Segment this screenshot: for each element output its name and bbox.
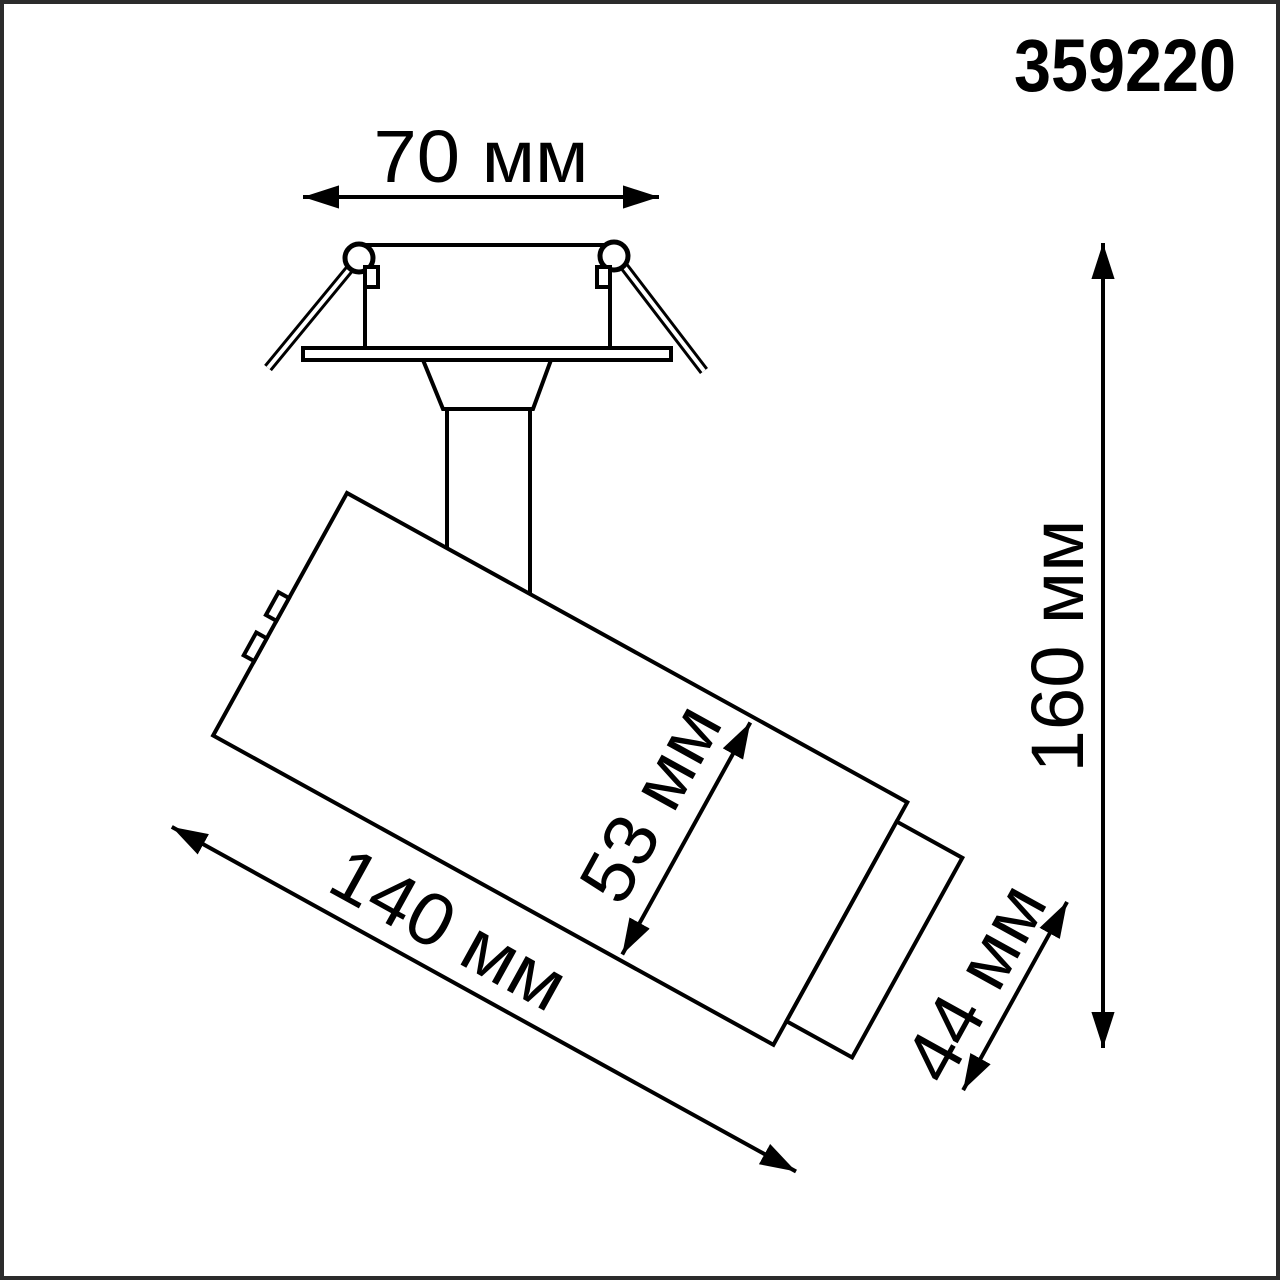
technical-drawing-page: 53 мм 44 мм 140 мм 70 мм 160 мм 359220	[0, 0, 1280, 1280]
dim-overall-height-label: 160 мм	[1016, 520, 1099, 773]
dim-flange-width-label: 70 мм	[374, 115, 589, 198]
mount-cone	[423, 360, 551, 409]
clip-tab-right	[597, 267, 610, 287]
ceiling-flange	[303, 348, 671, 360]
product-code-label: 359220	[1014, 24, 1236, 107]
spotlight-dimension-drawing: 53 мм 44 мм 140 мм 70 мм 160 мм 359220	[0, 0, 1280, 1280]
recessed-housing	[365, 245, 610, 348]
clip-tab-left	[365, 267, 378, 287]
